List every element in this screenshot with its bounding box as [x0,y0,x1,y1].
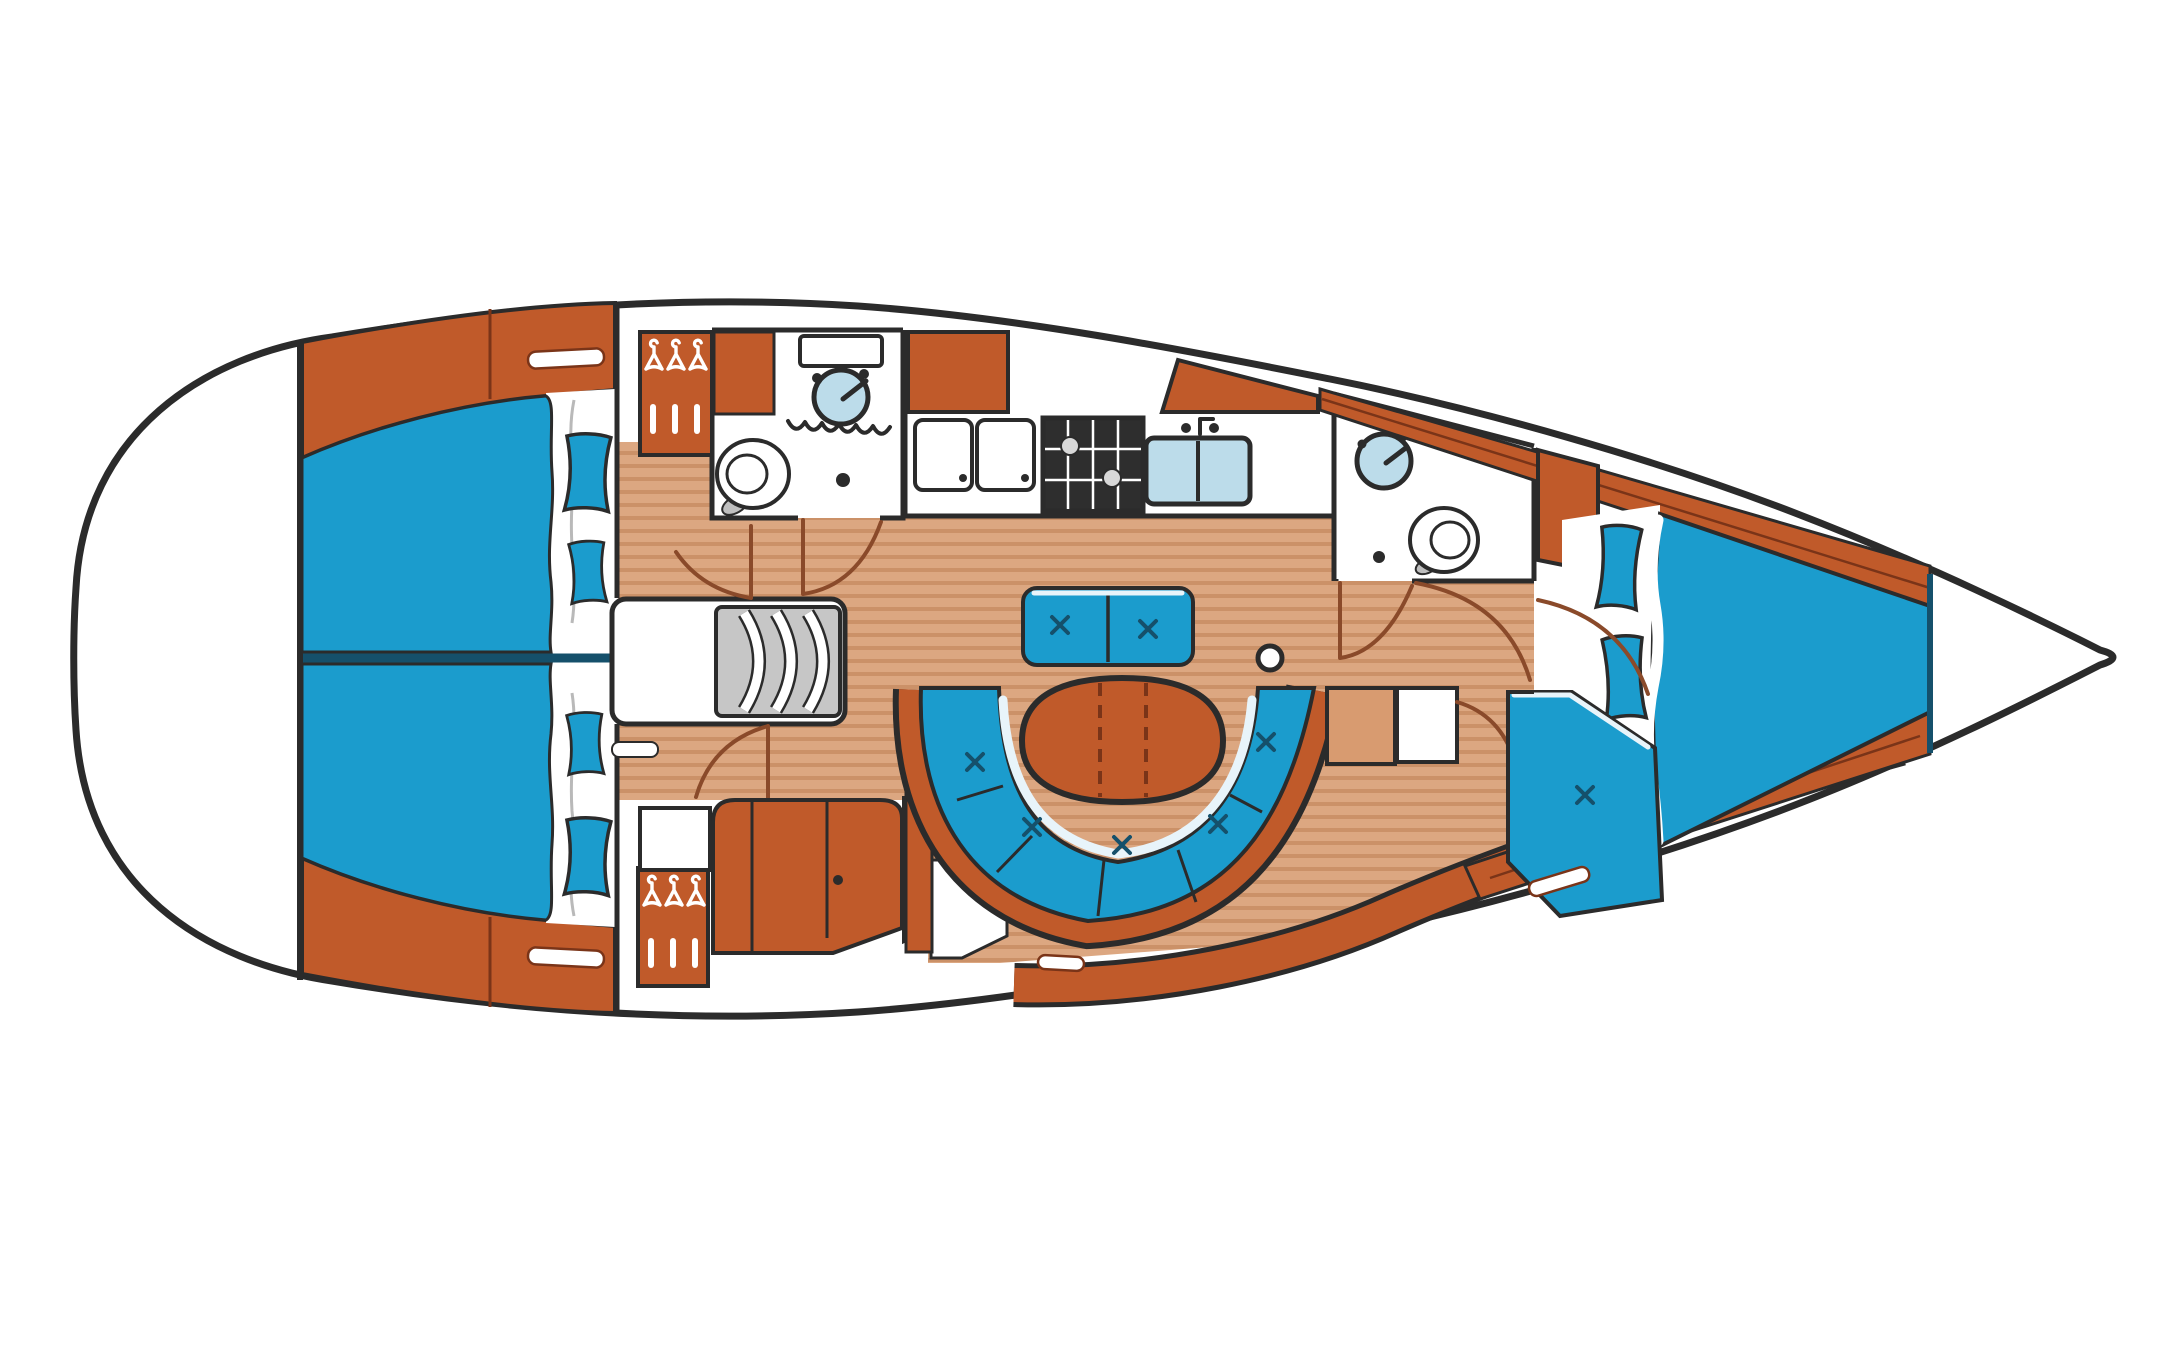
aft-cabin-starboard [302,664,615,1013]
pillow [1596,524,1642,610]
tap-knob [1181,423,1191,433]
stove-icon [1043,418,1143,511]
hanger-rail [692,938,698,968]
seat-button [833,875,843,885]
galley-upper-cabinet [908,332,1008,412]
hanger-rail [650,404,656,434]
seat-unit [713,800,902,953]
hanger-rail [672,404,678,434]
pillow [564,433,611,511]
pillow [569,540,607,603]
port-locker-handle [528,348,605,369]
companionway-steps [612,599,845,724]
dinette-table [1022,678,1223,802]
hanger-rail [648,938,654,968]
bulkhead-handle [612,742,658,757]
aft-head-cabinet [714,332,774,414]
washbasin [814,370,868,424]
floor-drain [836,473,850,487]
port-settee-bench [1023,588,1193,665]
starboard-counter [640,808,710,870]
boat-floor-plan: Sailing yacht interior layout plan, top-… [0,0,2177,1350]
locker-door [1397,688,1457,762]
tap-knob [859,369,869,379]
floor-plan-canvas: Sailing yacht interior layout plan, top-… [0,0,2177,1350]
hanging-locker-starboard [638,868,708,986]
cistern [800,336,882,366]
port-berth-pillow-zone [546,389,615,652]
starboard-locker-handle [528,947,605,968]
pillow [567,712,604,775]
floor-drain [1373,551,1385,563]
aft-head [712,330,903,519]
mast-post [1258,646,1282,670]
hanger-rail [670,938,676,968]
hanging-locker-port [640,332,712,455]
pillow [564,817,611,895]
tap-knob [1209,423,1219,433]
tap-knob [1358,440,1367,449]
hanger-rail [694,404,700,434]
aft-cabin-port [302,303,615,652]
lid-latch [1021,474,1029,482]
lid-latch [959,474,967,482]
tap-knob [812,373,822,383]
locker-step [1327,688,1395,764]
band-handle [1038,955,1085,971]
